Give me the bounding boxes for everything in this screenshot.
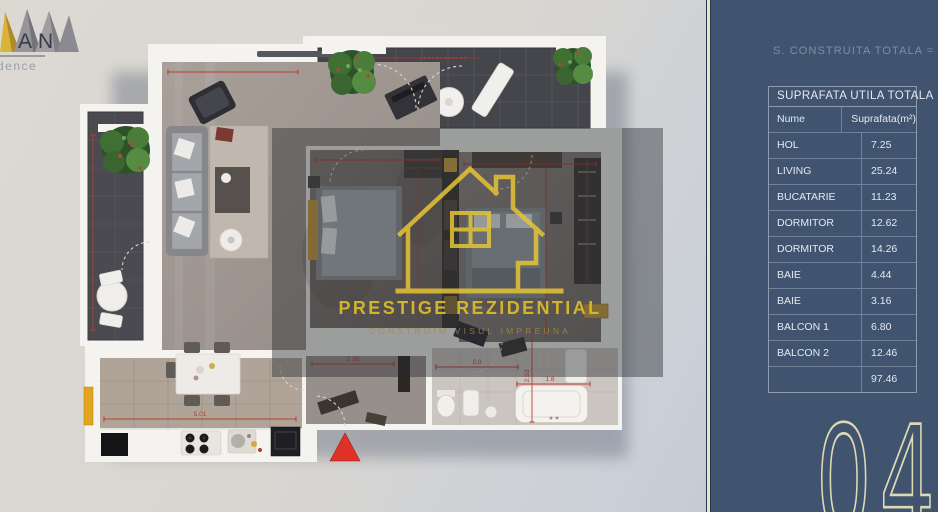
bathtub <box>515 385 588 423</box>
col-header-name: Nume <box>769 107 842 132</box>
unit-number-text: 04 <box>816 394 938 512</box>
watermark-title: PRESTIGE REZIDENTIAL <box>338 298 601 318</box>
pedestal-sink <box>485 406 497 418</box>
ac-unit <box>257 51 333 57</box>
sofa <box>166 126 208 256</box>
logo-text: AN <box>18 30 59 53</box>
table-row: LIVING 25.24 <box>769 159 916 185</box>
ottoman <box>215 127 234 142</box>
watermark-tagline: CONSTRUIM VISUL IMPREUNA <box>369 326 571 336</box>
table-header-row: Nume Suprafata(m²) <box>769 107 916 133</box>
col-header-area: Suprafata(m²) <box>842 107 916 132</box>
table-row: BALCON 2 12.46 <box>769 341 916 367</box>
table-row: DORMITOR 12.62 <box>769 211 916 237</box>
area-table-title: SUPRAFATA UTILA TOTALA <box>769 87 916 107</box>
area-table: SUPRAFATA UTILA TOTALA Nume Suprafata(m²… <box>768 86 917 393</box>
floor-plan: 5.01 2.26 2.0 2.53 1.8 3.2 <box>0 0 710 512</box>
toilet <box>437 390 455 417</box>
yellow-accent <box>84 387 93 425</box>
plant-terrace-left <box>328 50 376 95</box>
coffee-table <box>215 167 250 213</box>
table-row: BAIE 4.44 <box>769 263 916 289</box>
watermark-overlay: PRESTIGE REZIDENTIAL CONSTRUIM VISUL IMP… <box>272 128 663 377</box>
table-row: BAIE 3.16 <box>769 289 916 315</box>
plant-balcony <box>100 126 150 174</box>
total-area-value: 97.46 <box>862 367 916 392</box>
table-row: HOL 7.25 <box>769 133 916 159</box>
table-row: BUCATARIE 11.23 <box>769 185 916 211</box>
bidet <box>463 390 479 416</box>
sidebar: S. CONSTRUITA TOTALA = 119.10 SUPRAFATA … <box>706 0 938 512</box>
dim-tub: 1.8 <box>545 376 554 383</box>
built-area-label: S. CONSTRUITA TOTALA = 119.10 <box>773 45 938 57</box>
stage: 5.01 2.26 2.0 2.53 1.8 3.2 <box>0 0 938 512</box>
logo-subtext: dence <box>0 59 37 73</box>
table-total-row: 97.46 <box>769 367 916 392</box>
table-row: DORMITOR 14.26 <box>769 237 916 263</box>
developer-logo: AN dence <box>0 9 79 73</box>
plant-terrace-right <box>553 47 593 85</box>
table-row: BALCON 1 6.80 <box>769 315 916 341</box>
dim-kitchen: 5.01 <box>194 411 207 418</box>
